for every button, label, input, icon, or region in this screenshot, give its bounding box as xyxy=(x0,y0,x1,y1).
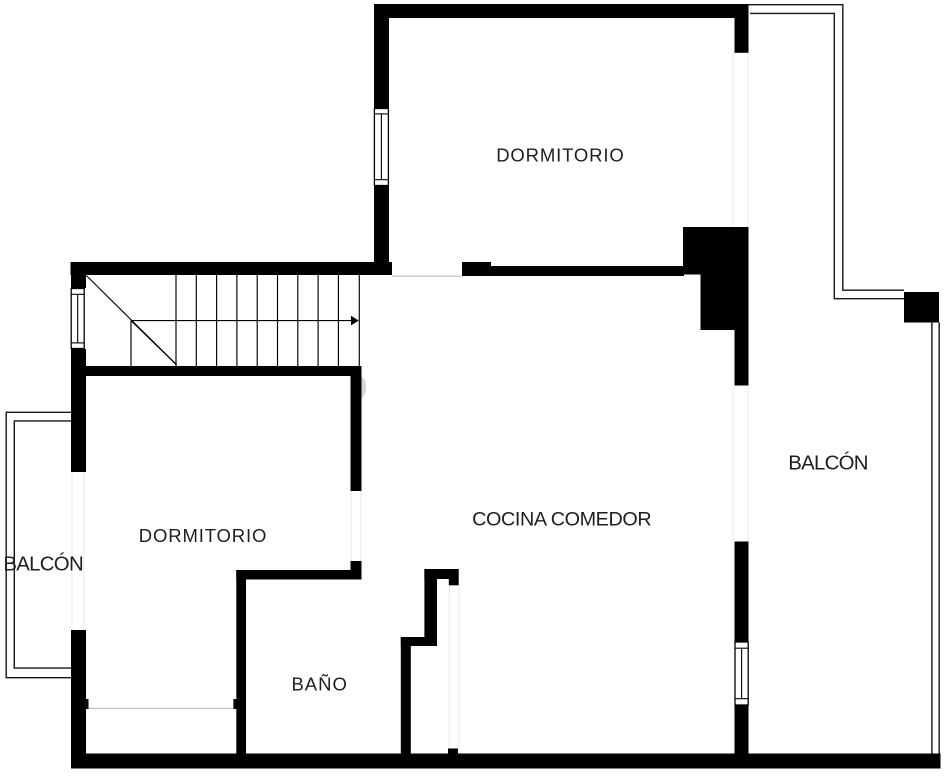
svg-text:BAÑO: BAÑO xyxy=(291,674,347,695)
svg-text:DORMITORIO: DORMITORIO xyxy=(139,525,267,546)
svg-text:BALCÓN: BALCÓN xyxy=(3,553,83,576)
svg-text:DORMITORIO: DORMITORIO xyxy=(496,144,624,165)
svg-text:COCINA COMEDOR: COCINA COMEDOR xyxy=(472,508,651,530)
svg-text:BALCÓN: BALCÓN xyxy=(788,451,868,474)
